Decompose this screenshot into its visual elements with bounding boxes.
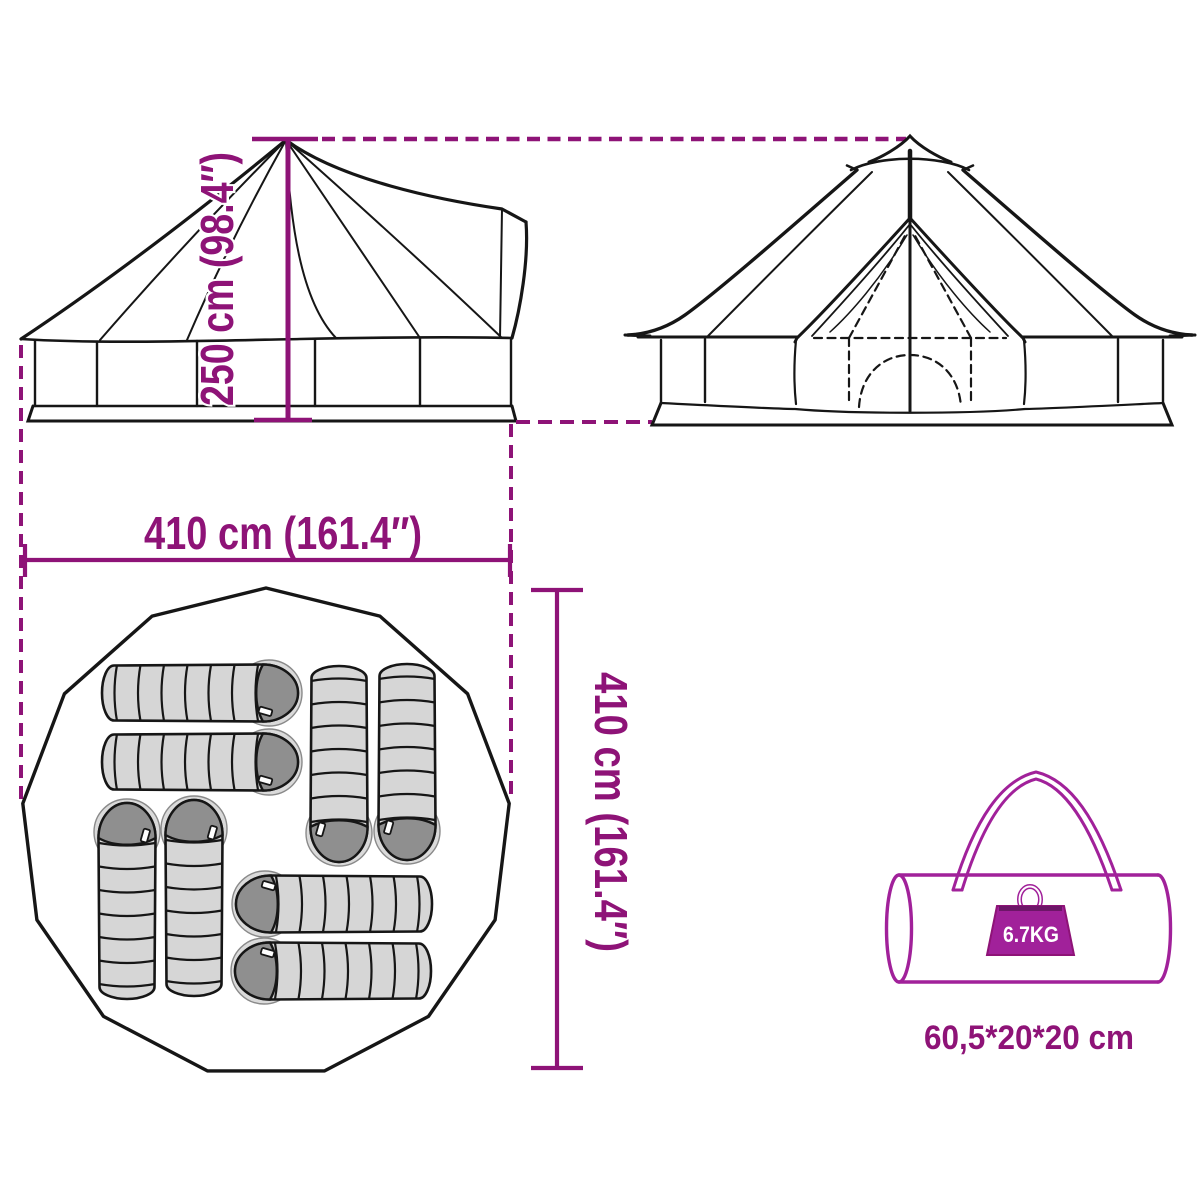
svg-text:60,5*20*20 cm: 60,5*20*20 cm [924,1019,1134,1057]
svg-text:410 cm (161.4″): 410 cm (161.4″) [144,507,422,559]
svg-text:250 cm (98.4″): 250 cm (98.4″) [191,152,243,406]
svg-text:6.7KG: 6.7KG [1003,922,1059,947]
svg-text:410 cm (161.4″): 410 cm (161.4″) [585,672,637,952]
